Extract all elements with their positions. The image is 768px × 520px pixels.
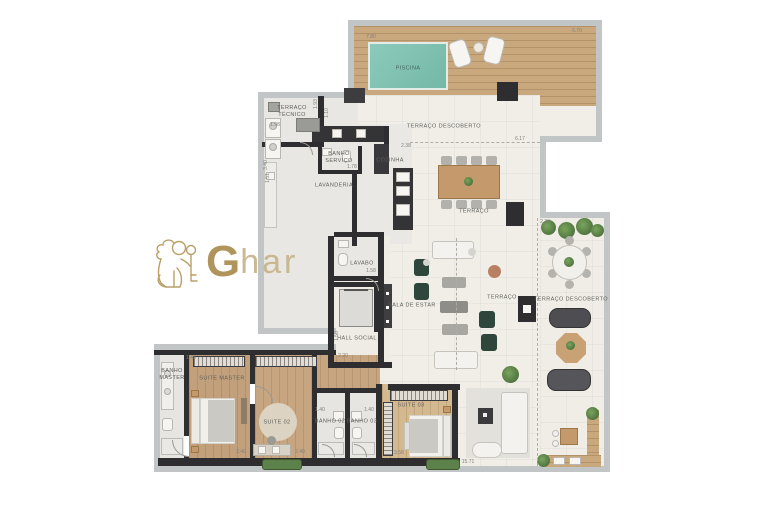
deck-side-table <box>473 42 484 53</box>
nightstand <box>191 446 199 453</box>
table-centerpiece-plant <box>564 257 574 267</box>
elevator-car <box>339 289 373 327</box>
wall <box>250 404 255 466</box>
exterior-border <box>540 136 602 142</box>
dim-banho-master-width: 1.45 <box>186 355 196 361</box>
wall <box>358 146 362 174</box>
wall <box>184 352 189 436</box>
dim-suite-02-width: 2.40 <box>295 449 305 455</box>
covered-area-dashed-line <box>410 142 540 143</box>
bench-cushion <box>569 457 581 465</box>
outdoor-lounge-sofa <box>549 308 591 328</box>
dim-deck-right: 5.70 <box>572 28 582 34</box>
wall <box>328 362 392 368</box>
bed-blanket <box>410 419 438 453</box>
brand-rest: har <box>240 245 298 279</box>
wall <box>334 276 384 281</box>
room-label-banho-master: BANHO MASTER <box>159 368 184 382</box>
wall <box>452 384 458 466</box>
dining-chair <box>471 156 482 165</box>
stool <box>552 430 559 437</box>
dim-banho-03-width: 1.40 <box>364 407 374 413</box>
dining-chair <box>456 156 467 165</box>
room-label-piscina: PISCINA <box>396 65 421 72</box>
deck-firepit <box>497 82 518 101</box>
stool <box>552 440 559 447</box>
bed-blanket <box>208 400 234 442</box>
nook-sofa <box>501 392 528 454</box>
wall <box>328 236 334 368</box>
coffee-table <box>440 301 468 313</box>
dim-suite-03-width: 3.58 <box>394 450 404 456</box>
exterior-border <box>258 92 354 98</box>
room-label-terraco-tecnico: TERRAÇO TÉCNICO <box>277 105 307 119</box>
armchair <box>414 283 429 300</box>
plant <box>586 407 599 420</box>
pouf <box>488 265 501 278</box>
small-outdoor-table <box>560 428 578 445</box>
brand-watermark: Ghar <box>148 233 298 291</box>
dining-chair <box>441 156 452 165</box>
dryer-door <box>269 143 277 151</box>
room-label-sala-de-estar: SALA DE ESTAR <box>388 302 436 309</box>
floor-plan: PISCINA TERRAÇO DESCOBERTO TERRAÇO TÉCNI… <box>0 0 768 520</box>
lavabo-sink <box>338 240 349 248</box>
covered-area-dashed-line <box>456 238 457 370</box>
room-label-hall-social: HALL SOCIAL <box>337 335 377 342</box>
exterior-border <box>348 20 602 26</box>
room-label-terraco-small: TERRAÇO <box>487 294 517 301</box>
dim-lavabo-width: 1.58 <box>366 268 376 274</box>
toilet <box>352 427 362 439</box>
room-label-lavanderia: LAVANDERIA <box>315 182 353 189</box>
closet <box>193 356 245 367</box>
exterior-border <box>154 344 160 472</box>
bench-cushion <box>553 457 565 465</box>
wall <box>158 458 460 466</box>
coffee-table <box>442 324 468 335</box>
wall <box>154 350 336 355</box>
grill-block <box>506 202 524 226</box>
closet <box>390 390 448 401</box>
exterior-border <box>540 136 546 218</box>
bed-pillows <box>443 415 451 457</box>
armchair <box>481 334 497 351</box>
fireplace-inner <box>523 305 531 313</box>
exterior-border <box>540 212 610 218</box>
wall <box>312 388 317 466</box>
sink <box>164 388 171 395</box>
room-label-suite-03: SUITE 03 <box>397 402 424 409</box>
dim-lavanderia-height2: 1.51 <box>265 173 271 183</box>
shelf-knob <box>386 320 389 323</box>
nook-chaise <box>472 442 502 458</box>
exterior-border <box>258 328 336 334</box>
elevator-door <box>344 289 368 291</box>
dim-total-width: 15.71 <box>462 459 475 465</box>
plant <box>591 224 604 237</box>
side-table <box>468 248 476 256</box>
dim-banho-02-width: 1.40 <box>315 407 325 413</box>
plant <box>502 366 519 383</box>
wall <box>334 232 384 237</box>
dim-tecnico-width: 1.98 <box>270 122 280 128</box>
kitchen-sink <box>332 129 342 138</box>
brand-initial: G <box>206 242 240 282</box>
dim-cozinha-top: 2.38 <box>401 143 411 149</box>
nook-table-decor <box>483 413 487 417</box>
kitchen-counter <box>312 126 388 142</box>
oven <box>396 204 410 216</box>
table-centerpiece-plant <box>464 177 473 186</box>
side-table <box>423 259 430 266</box>
room-label-banho-02: BANHO 02 <box>315 418 345 425</box>
kitchen-sink <box>356 129 366 138</box>
dim-servico-width: 1.78 <box>347 164 357 170</box>
room-label-lavabo: LAVABO <box>350 260 374 267</box>
nightstand <box>191 390 199 397</box>
outdoor-chair <box>565 280 574 289</box>
dim-pool-width: 7.80 <box>366 34 376 40</box>
room-label-banho-03: BANHO 03 <box>347 418 377 425</box>
exterior-border <box>596 20 602 142</box>
technical-equipment <box>296 118 320 132</box>
lavabo-toilet <box>338 253 348 266</box>
room-label-suite-02: SUITE 02 <box>263 419 290 426</box>
desk-chair <box>267 436 276 445</box>
plant <box>537 454 550 467</box>
dim-terraco-right-top: 2.38 <box>540 219 550 225</box>
coffee-table <box>442 277 466 288</box>
dining-chair <box>441 200 452 209</box>
dim-hall-height: 1.50 <box>334 331 340 341</box>
island-sink <box>396 186 410 196</box>
dim-suite-master-width: 2.40 <box>236 449 246 455</box>
dim-servico-side: 1.93 <box>313 99 319 109</box>
closet <box>255 356 317 367</box>
dresser <box>241 398 247 424</box>
desk-item <box>272 446 280 454</box>
suite-corridor-floor <box>312 355 380 388</box>
room-label-banho-servico: BANHO SERVIÇO <box>325 151 352 165</box>
dining-chair <box>486 156 497 165</box>
armchair <box>479 311 495 328</box>
bed-bench <box>404 422 410 450</box>
room-label-terraco-descoberto-top: TERRAÇO DESCOBERTO <box>407 123 481 130</box>
room-label-suite-master: SUITE MASTER <box>199 375 244 382</box>
room-label-terraco-descoberto-right: TERRAÇO DESCOBERTO <box>534 296 608 303</box>
bed-pillows <box>191 398 200 444</box>
shelf-knob <box>386 292 389 295</box>
desk-item <box>258 446 266 454</box>
nightstand <box>443 406 451 413</box>
room-label-cozinha: COZINHA <box>376 157 404 164</box>
planter-hedge <box>262 459 302 470</box>
cooktop <box>396 172 410 182</box>
exterior-border <box>604 212 610 472</box>
dim-lavanderia-height: 3.40 <box>263 160 269 170</box>
planter-hedge <box>426 459 460 470</box>
wardrobe <box>383 402 393 456</box>
toilet <box>334 427 344 439</box>
plant <box>566 341 575 350</box>
deck-planter <box>344 88 365 103</box>
toilet <box>162 418 173 431</box>
dim-hall-width: 2.20 <box>338 353 348 359</box>
room-label-terraco: TERRAÇO <box>459 208 489 215</box>
dim-terraco-width: 6.17 <box>515 136 525 142</box>
lion-key-logo-icon <box>148 233 202 291</box>
outdoor-lounge-sofa <box>547 369 591 391</box>
covered-area-dashed-line <box>537 218 538 466</box>
outdoor-chair <box>565 236 574 245</box>
dim-tecnico-height: 1.10 <box>324 108 330 118</box>
